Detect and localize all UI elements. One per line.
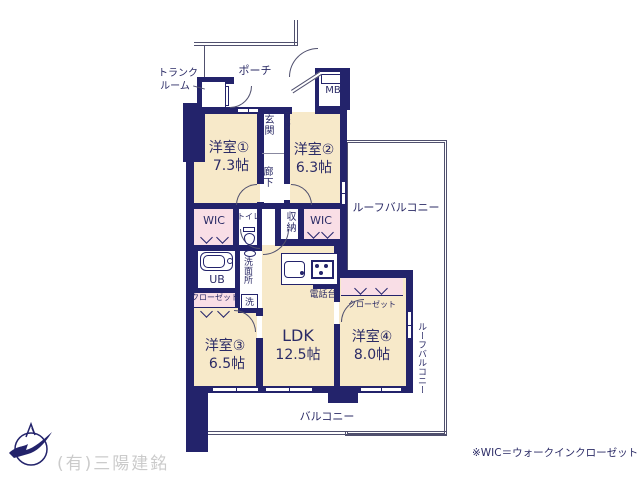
trunk-room-label: トランク xyxy=(158,68,198,79)
wic-right-label: WIC xyxy=(310,215,332,227)
wall xyxy=(256,338,263,386)
entrance-step-line xyxy=(262,153,284,154)
room2-name: 洋室② xyxy=(294,143,335,158)
balcony-label: バルコニー xyxy=(300,411,355,423)
washroom-label: 洗面所 xyxy=(242,257,251,284)
burner-icon xyxy=(324,264,328,268)
room2-size: 6.3帖 xyxy=(296,161,332,176)
washer-label: 洗 xyxy=(245,295,254,308)
room1-size: 7.3帖 xyxy=(213,159,249,174)
company-watermark: (有)三陽建銘 xyxy=(57,449,169,474)
ldk-size: 12.5帖 xyxy=(275,348,320,363)
washer-box: 洗 xyxy=(241,294,258,309)
wall xyxy=(328,393,358,403)
shoe-cabinet-label: 下駄箱 xyxy=(283,112,289,130)
phone-stand-label: 電話台 xyxy=(309,291,336,301)
window xyxy=(340,182,347,204)
toilet-label: トイレ xyxy=(237,213,261,222)
closet-edge-line xyxy=(341,295,403,296)
window xyxy=(238,107,258,114)
room1-name: 洋室① xyxy=(209,141,250,156)
kitchen-sink-icon xyxy=(284,261,305,278)
trunk-door-leaf xyxy=(225,86,229,106)
closet-edge-line xyxy=(194,307,236,308)
trunk-door-arc xyxy=(230,86,252,108)
room4-closet-label: クローゼット xyxy=(348,301,396,310)
room3-size: 6.5帖 xyxy=(209,357,245,372)
wall xyxy=(339,270,413,278)
trunk-room-label: ルーム xyxy=(160,81,190,92)
storage-label: 収納 xyxy=(284,211,294,233)
balcony-pillar xyxy=(186,391,208,452)
bath-label: UB xyxy=(209,274,225,286)
floor-plan: トランク ルーム ポーチ MB 玄関 下駄箱 廊下 洋室① 7.3帖 洋室② 6… xyxy=(0,0,640,480)
wic-note: ※WIC＝ウォークインクローゼット xyxy=(472,445,638,460)
balcony-outline-bottom xyxy=(206,431,447,435)
wash-basin-icon xyxy=(244,250,256,257)
porch-label: ポーチ xyxy=(239,65,272,77)
bathtub-icon xyxy=(203,255,225,268)
faucet-icon xyxy=(300,271,304,275)
burner-icon xyxy=(319,271,323,275)
room3-name: 洋室③ xyxy=(205,339,246,354)
wall xyxy=(340,68,347,278)
wall xyxy=(256,308,263,316)
porch-outline-top xyxy=(194,42,298,46)
ldk-name: LDK xyxy=(282,327,314,345)
burner-icon xyxy=(315,264,319,268)
meter-box-label: MB xyxy=(325,85,341,96)
bathtub-drain-icon xyxy=(227,258,233,264)
porch-outline-right xyxy=(294,20,298,46)
window xyxy=(361,386,401,393)
room4-name: 洋室④ xyxy=(352,330,393,345)
entrance-door-arc xyxy=(289,48,318,77)
porch-outline-left xyxy=(204,46,205,79)
room4-closet-floor xyxy=(341,276,403,296)
window xyxy=(213,386,258,393)
room4-size: 8.0帖 xyxy=(354,348,390,363)
window xyxy=(266,386,312,393)
compass-north-icon xyxy=(6,418,56,472)
toilet-icon xyxy=(243,227,255,232)
trunk-room-floor xyxy=(202,82,225,110)
closet-label: クローゼット xyxy=(191,294,239,303)
corridor-label: 廊下 xyxy=(261,166,271,188)
wall xyxy=(193,203,343,209)
roof-balcony-label: ルーフバルコニー xyxy=(352,202,439,214)
window xyxy=(406,312,413,338)
roof-balcony-label-vertical: ルーフバルコニー xyxy=(416,322,425,394)
stove-icon xyxy=(311,260,334,279)
wall xyxy=(334,324,340,393)
wic-left-label: WIC xyxy=(203,215,225,227)
entrance-label: 玄関 xyxy=(262,114,272,136)
